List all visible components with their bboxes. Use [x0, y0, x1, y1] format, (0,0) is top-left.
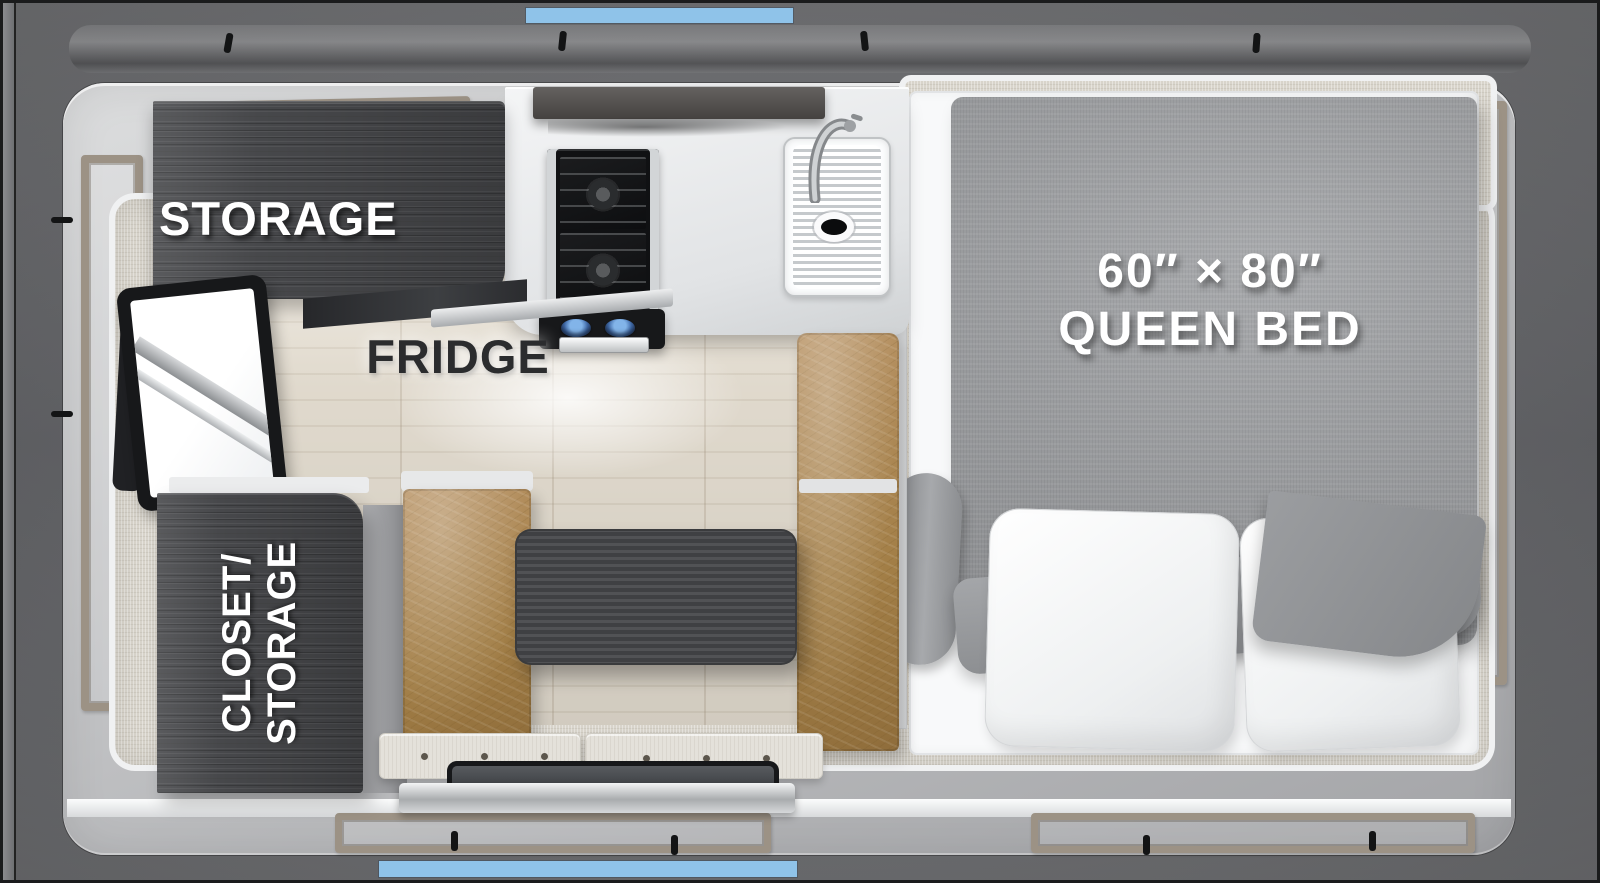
tv-reflection: [131, 336, 274, 456]
window-latch-icon: [451, 831, 458, 851]
burner-icon: [560, 157, 646, 229]
bed-size-text: 60″ × 80″: [955, 243, 1465, 301]
closet-storage-cabinet: CLOSET/ STORAGE: [157, 493, 363, 793]
pillow-left: [984, 508, 1240, 752]
cooktop: [547, 149, 659, 311]
dinette-table: [515, 529, 797, 665]
stove-knob-icon: [605, 319, 635, 337]
bed-name-text: QUEEN BED: [955, 301, 1465, 359]
window-latch-icon: [1369, 831, 1376, 851]
window-latch-icon: [51, 411, 73, 417]
fridge-label: FRIDGE: [343, 329, 573, 384]
closet-top-trim: [169, 477, 369, 493]
entry-door-threshold: [399, 783, 795, 813]
faucet-icon: [801, 107, 865, 203]
storage-label: STORAGE: [159, 191, 398, 246]
tv-screen: [130, 288, 274, 498]
queen-bed-label: 60″ × 80″ QUEEN BED: [955, 243, 1465, 363]
bench-top-trim: [799, 479, 897, 493]
window-latch-icon: [51, 217, 73, 223]
window-latch-icon: [1143, 835, 1150, 855]
storage-cabinet: STORAGE: [153, 101, 505, 299]
cushion-button-icon: [541, 753, 548, 760]
cushion-button-icon: [421, 753, 428, 760]
closet-label-line1: CLOSET/: [215, 541, 260, 745]
closet-label: CLOSET/ STORAGE: [215, 541, 305, 745]
window-bottom-left: [335, 813, 771, 853]
camper-left-edge: [3, 3, 16, 883]
roof-seam: [69, 25, 1531, 73]
cushion-button-icon: [481, 753, 488, 760]
range-hood-shadow: [548, 117, 788, 137]
sink-drain-icon: [821, 219, 847, 235]
bench-top-trim: [401, 471, 533, 491]
dinette-bench-left: [403, 489, 531, 747]
closet-label-line2: STORAGE: [260, 541, 305, 745]
range-hood: [533, 87, 825, 119]
roof-latch-icon: [1252, 33, 1260, 53]
bottom-accent-bar: [379, 861, 797, 877]
top-accent-bar: [526, 8, 793, 23]
dinette-bench-right: [797, 333, 899, 751]
window-bottom-right: [1031, 813, 1475, 853]
floorplan-canvas: 60″ × 80″ QUEEN BED STORAGE FRIDGE: [0, 0, 1600, 883]
window-latch-icon: [671, 835, 678, 855]
